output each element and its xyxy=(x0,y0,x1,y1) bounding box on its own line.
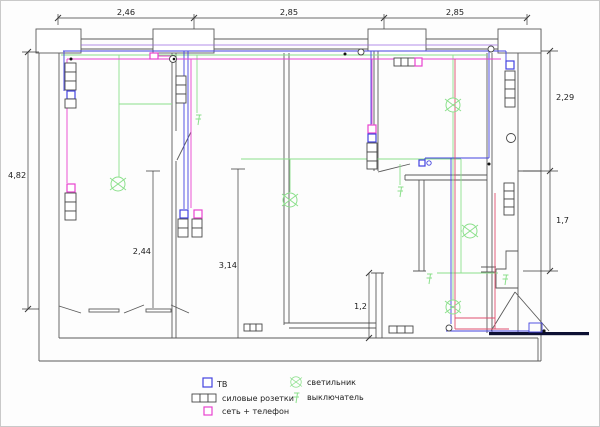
junction-dot xyxy=(542,329,545,332)
socket-outlet xyxy=(427,161,431,165)
junction-box xyxy=(507,134,516,143)
socket-cell xyxy=(192,219,202,228)
socket-cell xyxy=(65,99,76,108)
socket-cell xyxy=(504,191,514,199)
socket-cell xyxy=(178,219,188,228)
interior-walls xyxy=(172,51,518,338)
dim-label-right-upper: 2,29 xyxy=(556,92,574,102)
door-leaf-corridor xyxy=(378,164,410,172)
wall-pillar xyxy=(153,29,214,53)
socket-cell xyxy=(397,326,405,333)
socket-cell xyxy=(176,76,186,85)
socket-cell xyxy=(256,324,262,331)
wall-left-room xyxy=(172,53,176,338)
network-phone-socket xyxy=(415,58,422,66)
junction-dot xyxy=(488,163,491,166)
socket-cell xyxy=(176,94,186,103)
electrical-plan-drawing: 2,46 2,85 2,85 4,82 2,29 1,7 2,44 3,14 1… xyxy=(1,1,600,427)
socket-cell xyxy=(192,228,202,237)
socket-cell xyxy=(65,211,76,220)
network-phone-socket-icon xyxy=(204,407,212,415)
ceiling-light-icon xyxy=(445,98,461,112)
tv-socket xyxy=(368,134,376,142)
socket-cell xyxy=(176,85,186,94)
wall-pillar xyxy=(36,29,81,53)
legend: ТВ силовые розетки сеть + телефон светил… xyxy=(192,377,364,416)
tv-socket xyxy=(419,160,425,166)
legend-item-tv: ТВ xyxy=(203,378,227,389)
socket-cell xyxy=(65,193,76,202)
wires-power-network xyxy=(67,53,509,329)
wall-right-shaft xyxy=(487,53,492,333)
socket-cell xyxy=(505,80,515,89)
ceiling-light-icon xyxy=(110,177,126,191)
switch-icon xyxy=(196,115,202,125)
network-phone-socket xyxy=(368,125,376,133)
power-sockets-icon xyxy=(208,394,216,402)
wires-lighting xyxy=(61,55,498,300)
intercom-box xyxy=(529,323,542,332)
legend-item-net: сеть + телефон xyxy=(204,407,289,416)
wires-tv-network xyxy=(63,45,542,332)
legend-label-switch: выключатель xyxy=(307,393,364,402)
tv-socket xyxy=(67,91,75,99)
dim-label-room-mid: 3,14 xyxy=(219,260,237,270)
socket-cell xyxy=(504,183,514,191)
socket-cell xyxy=(505,98,515,107)
socket-cell xyxy=(367,143,377,152)
socket-cell xyxy=(367,161,377,169)
dim-label-top-2: 2,85 xyxy=(280,7,298,17)
junction-box xyxy=(446,325,452,331)
socket-cell xyxy=(504,207,514,215)
light-fixtures xyxy=(110,98,478,314)
switch-icon xyxy=(294,393,300,403)
socket-cell xyxy=(505,89,515,98)
ceiling-light-icon xyxy=(462,224,478,238)
network-node xyxy=(150,53,158,59)
legend-item-switch: выключатель xyxy=(294,393,365,403)
socket-cell xyxy=(408,58,415,66)
top-wall-lines xyxy=(81,39,498,49)
legend-item-light: светильник xyxy=(290,377,356,388)
network-phone-socket xyxy=(67,184,75,192)
tv-socket xyxy=(506,61,514,69)
socket-cell xyxy=(244,324,250,331)
closet-doors xyxy=(59,305,189,313)
floor-plan-canvas: 2,46 2,85 2,85 4,82 2,29 1,7 2,44 3,14 1… xyxy=(0,0,600,427)
power-sockets-icon xyxy=(200,394,208,402)
switch-icon xyxy=(503,275,509,285)
entry-door-swing xyxy=(491,292,549,331)
legend-label-tv: ТВ xyxy=(216,380,227,389)
wall-pillar xyxy=(368,29,426,51)
entry-jamb xyxy=(496,251,518,288)
wall-pillar xyxy=(498,29,541,53)
socket-cell xyxy=(401,58,408,66)
socket-cell xyxy=(65,81,76,90)
junction-dot xyxy=(344,53,347,56)
legend-label-light: светильник xyxy=(307,378,356,387)
socket-cell xyxy=(250,324,256,331)
socket-cell xyxy=(367,152,377,161)
junction-box xyxy=(358,49,364,55)
junction-dot xyxy=(70,58,73,61)
junction-box xyxy=(488,46,494,52)
dim-label-top-3: 2,85 xyxy=(446,7,464,17)
socket-groups xyxy=(65,58,515,334)
ceiling-light-icon xyxy=(290,377,302,388)
legend-item-power: силовые розетки xyxy=(192,394,294,403)
socket-cell xyxy=(65,202,76,211)
network-phone-socket xyxy=(194,210,202,218)
socket-cell xyxy=(178,228,188,237)
wall-middle xyxy=(284,53,376,328)
socket-cell xyxy=(394,58,401,66)
wall-kitchen xyxy=(405,175,496,272)
dim-label-room-left: 2,44 xyxy=(133,246,151,256)
dim-label-bath: 1,2 xyxy=(354,301,367,311)
legend-label-net: сеть + телефон xyxy=(222,407,289,416)
socket-cell xyxy=(505,71,515,80)
socket-cell xyxy=(405,326,413,333)
entry-threshold-bar xyxy=(489,332,589,335)
tv-socket-icon xyxy=(203,378,212,387)
ceiling-light-icon xyxy=(445,300,461,314)
dim-label-right-lower: 1,7 xyxy=(556,215,569,225)
power-sockets-icon xyxy=(192,394,200,402)
switches xyxy=(196,115,509,285)
legend-label-power: силовые розетки xyxy=(222,394,294,403)
switch-icon xyxy=(427,274,433,284)
switch-icon xyxy=(398,187,404,197)
dim-label-top-1: 2,46 xyxy=(117,7,135,17)
socket-cell xyxy=(389,326,397,333)
junction-dot xyxy=(173,58,176,61)
socket-cell xyxy=(504,199,514,207)
junction-boxes xyxy=(170,46,516,331)
socket-cell xyxy=(65,63,76,72)
socket-cell xyxy=(65,72,76,81)
dim-label-left: 4,82 xyxy=(8,170,26,180)
tv-socket xyxy=(180,210,188,218)
